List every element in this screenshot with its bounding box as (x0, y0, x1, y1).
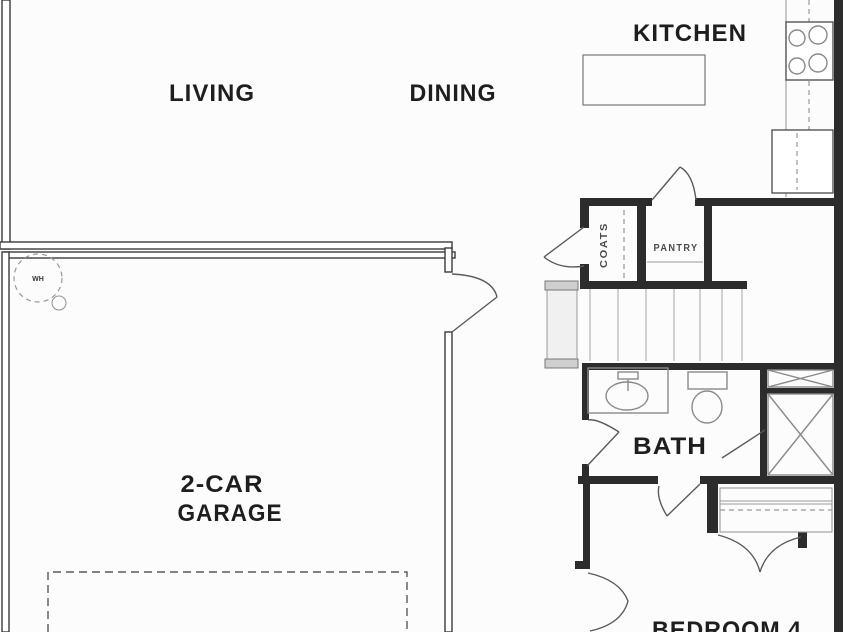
bath-door (587, 420, 619, 466)
stair-railing (547, 281, 577, 368)
bath-fixtures (588, 368, 833, 475)
wall (2, 252, 9, 632)
wall (707, 484, 718, 533)
wall (578, 476, 658, 484)
coats-closet-door (544, 227, 584, 267)
pantry-door (652, 167, 696, 200)
shower-icon (768, 394, 833, 475)
room-labels: LIVING DINING KITCHEN 2-CAR GARAGE BATH … (169, 20, 802, 632)
wall (445, 332, 452, 632)
stair-rail-cap (545, 359, 578, 368)
floor-plan-page: WH LIVING DINING KITCHEN 2-CAR GARAGE BA… (0, 0, 843, 632)
garage-label-line2: GARAGE (178, 500, 283, 527)
water-heater-label: WH (32, 276, 44, 283)
refrigerator-icon (772, 130, 833, 193)
wall (760, 370, 767, 476)
bedroom-closet (718, 488, 832, 572)
wall (445, 248, 452, 272)
wall (695, 198, 836, 206)
bath-sink-icon (588, 368, 668, 413)
living-room-label: LIVING (169, 80, 255, 107)
linen-cabinet-icon (768, 370, 833, 387)
wall (4, 252, 455, 258)
wall (575, 561, 590, 569)
wall (798, 532, 807, 548)
garage-door-dashed (48, 572, 407, 632)
kitchen-label: KITCHEN (633, 20, 747, 47)
wall (2, 0, 10, 249)
door-leaf (722, 430, 765, 458)
garage-label-line1: 2-CAR (181, 471, 264, 498)
wall (580, 206, 589, 228)
kitchen-island (583, 55, 705, 105)
wall (580, 198, 652, 206)
hall-door (658, 484, 700, 516)
wall (700, 476, 836, 484)
wall (834, 0, 843, 632)
closet-door-swing (760, 537, 801, 572)
wall (0, 242, 452, 249)
staircase (545, 281, 742, 368)
wall (582, 464, 589, 478)
garage-symbols: WH (14, 254, 407, 632)
wall (760, 388, 836, 394)
coats-label: COATS (599, 222, 610, 268)
wall (637, 206, 646, 288)
drain-icon (52, 296, 66, 310)
stair-rail-cap (545, 281, 578, 290)
interior-walls (575, 198, 836, 569)
stove-burners-icon (786, 22, 833, 80)
garage-entry-door (452, 274, 497, 332)
wall (704, 206, 712, 288)
dining-room-label: DINING (410, 80, 497, 107)
wall (583, 484, 590, 563)
wall (580, 281, 747, 289)
closet-door-swing (718, 535, 760, 572)
bath-label: BATH (633, 433, 707, 460)
floor-plan-canvas: WH LIVING DINING KITCHEN 2-CAR GARAGE BA… (0, 0, 843, 632)
wall (582, 363, 836, 370)
pantry-label: PANTRY (654, 243, 699, 254)
stair-treads (590, 289, 742, 361)
bedroom4-label: BEDROOM 4 (652, 617, 802, 632)
toilet-icon (688, 372, 727, 423)
bedroom-door (588, 573, 628, 631)
